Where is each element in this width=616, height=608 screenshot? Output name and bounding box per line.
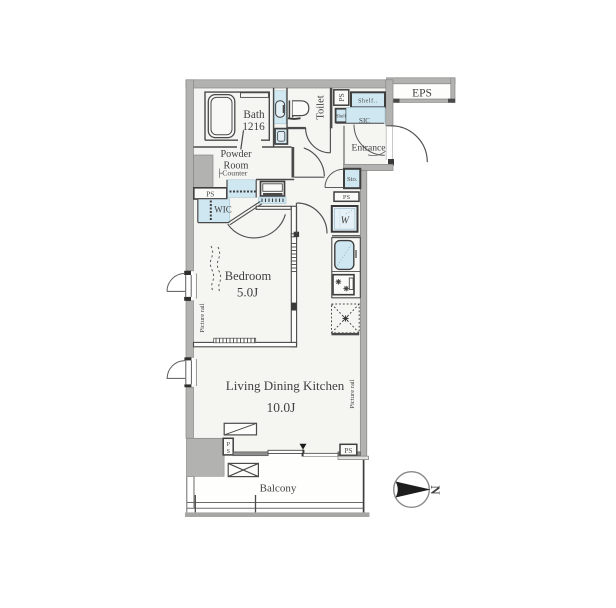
svg-text:Powder: Powder [220,149,252,160]
svg-text:PS: PS [337,93,346,101]
svg-text:S: S [227,448,231,455]
svg-text:Entrance: Entrance [351,142,385,153]
svg-text:Bath: Bath [243,109,265,121]
svg-text:WIC: WIC [214,205,232,215]
svg-text:Living Dining Kitchen: Living Dining Kitchen [226,378,345,393]
svg-text:SIC: SIC [359,117,370,125]
svg-text:Shelf..: Shelf.. [358,97,378,104]
svg-text:PS: PS [206,190,214,199]
svg-text:PS: PS [344,447,352,455]
svg-text:Shelf: Shelf [336,115,347,120]
svg-text:Balcony: Balcony [260,483,297,495]
svg-text:Picture rail: Picture rail [349,379,356,408]
svg-text:5.0J: 5.0J [237,285,258,300]
svg-text:Bedroom: Bedroom [225,269,272,283]
svg-text:PS: PS [343,194,351,201]
svg-text:10.0J: 10.0J [267,400,296,415]
svg-text:├Counter: ├Counter [217,168,248,179]
svg-text:Picture rail: Picture rail [199,303,206,332]
svg-text:Sto.: Sto. [347,176,358,183]
svg-text:P: P [227,441,231,448]
svg-text:1216: 1216 [242,121,265,133]
svg-text:N: N [428,485,442,494]
svg-text:Toilet: Toilet [316,95,327,119]
svg-text:EPS: EPS [412,88,432,100]
